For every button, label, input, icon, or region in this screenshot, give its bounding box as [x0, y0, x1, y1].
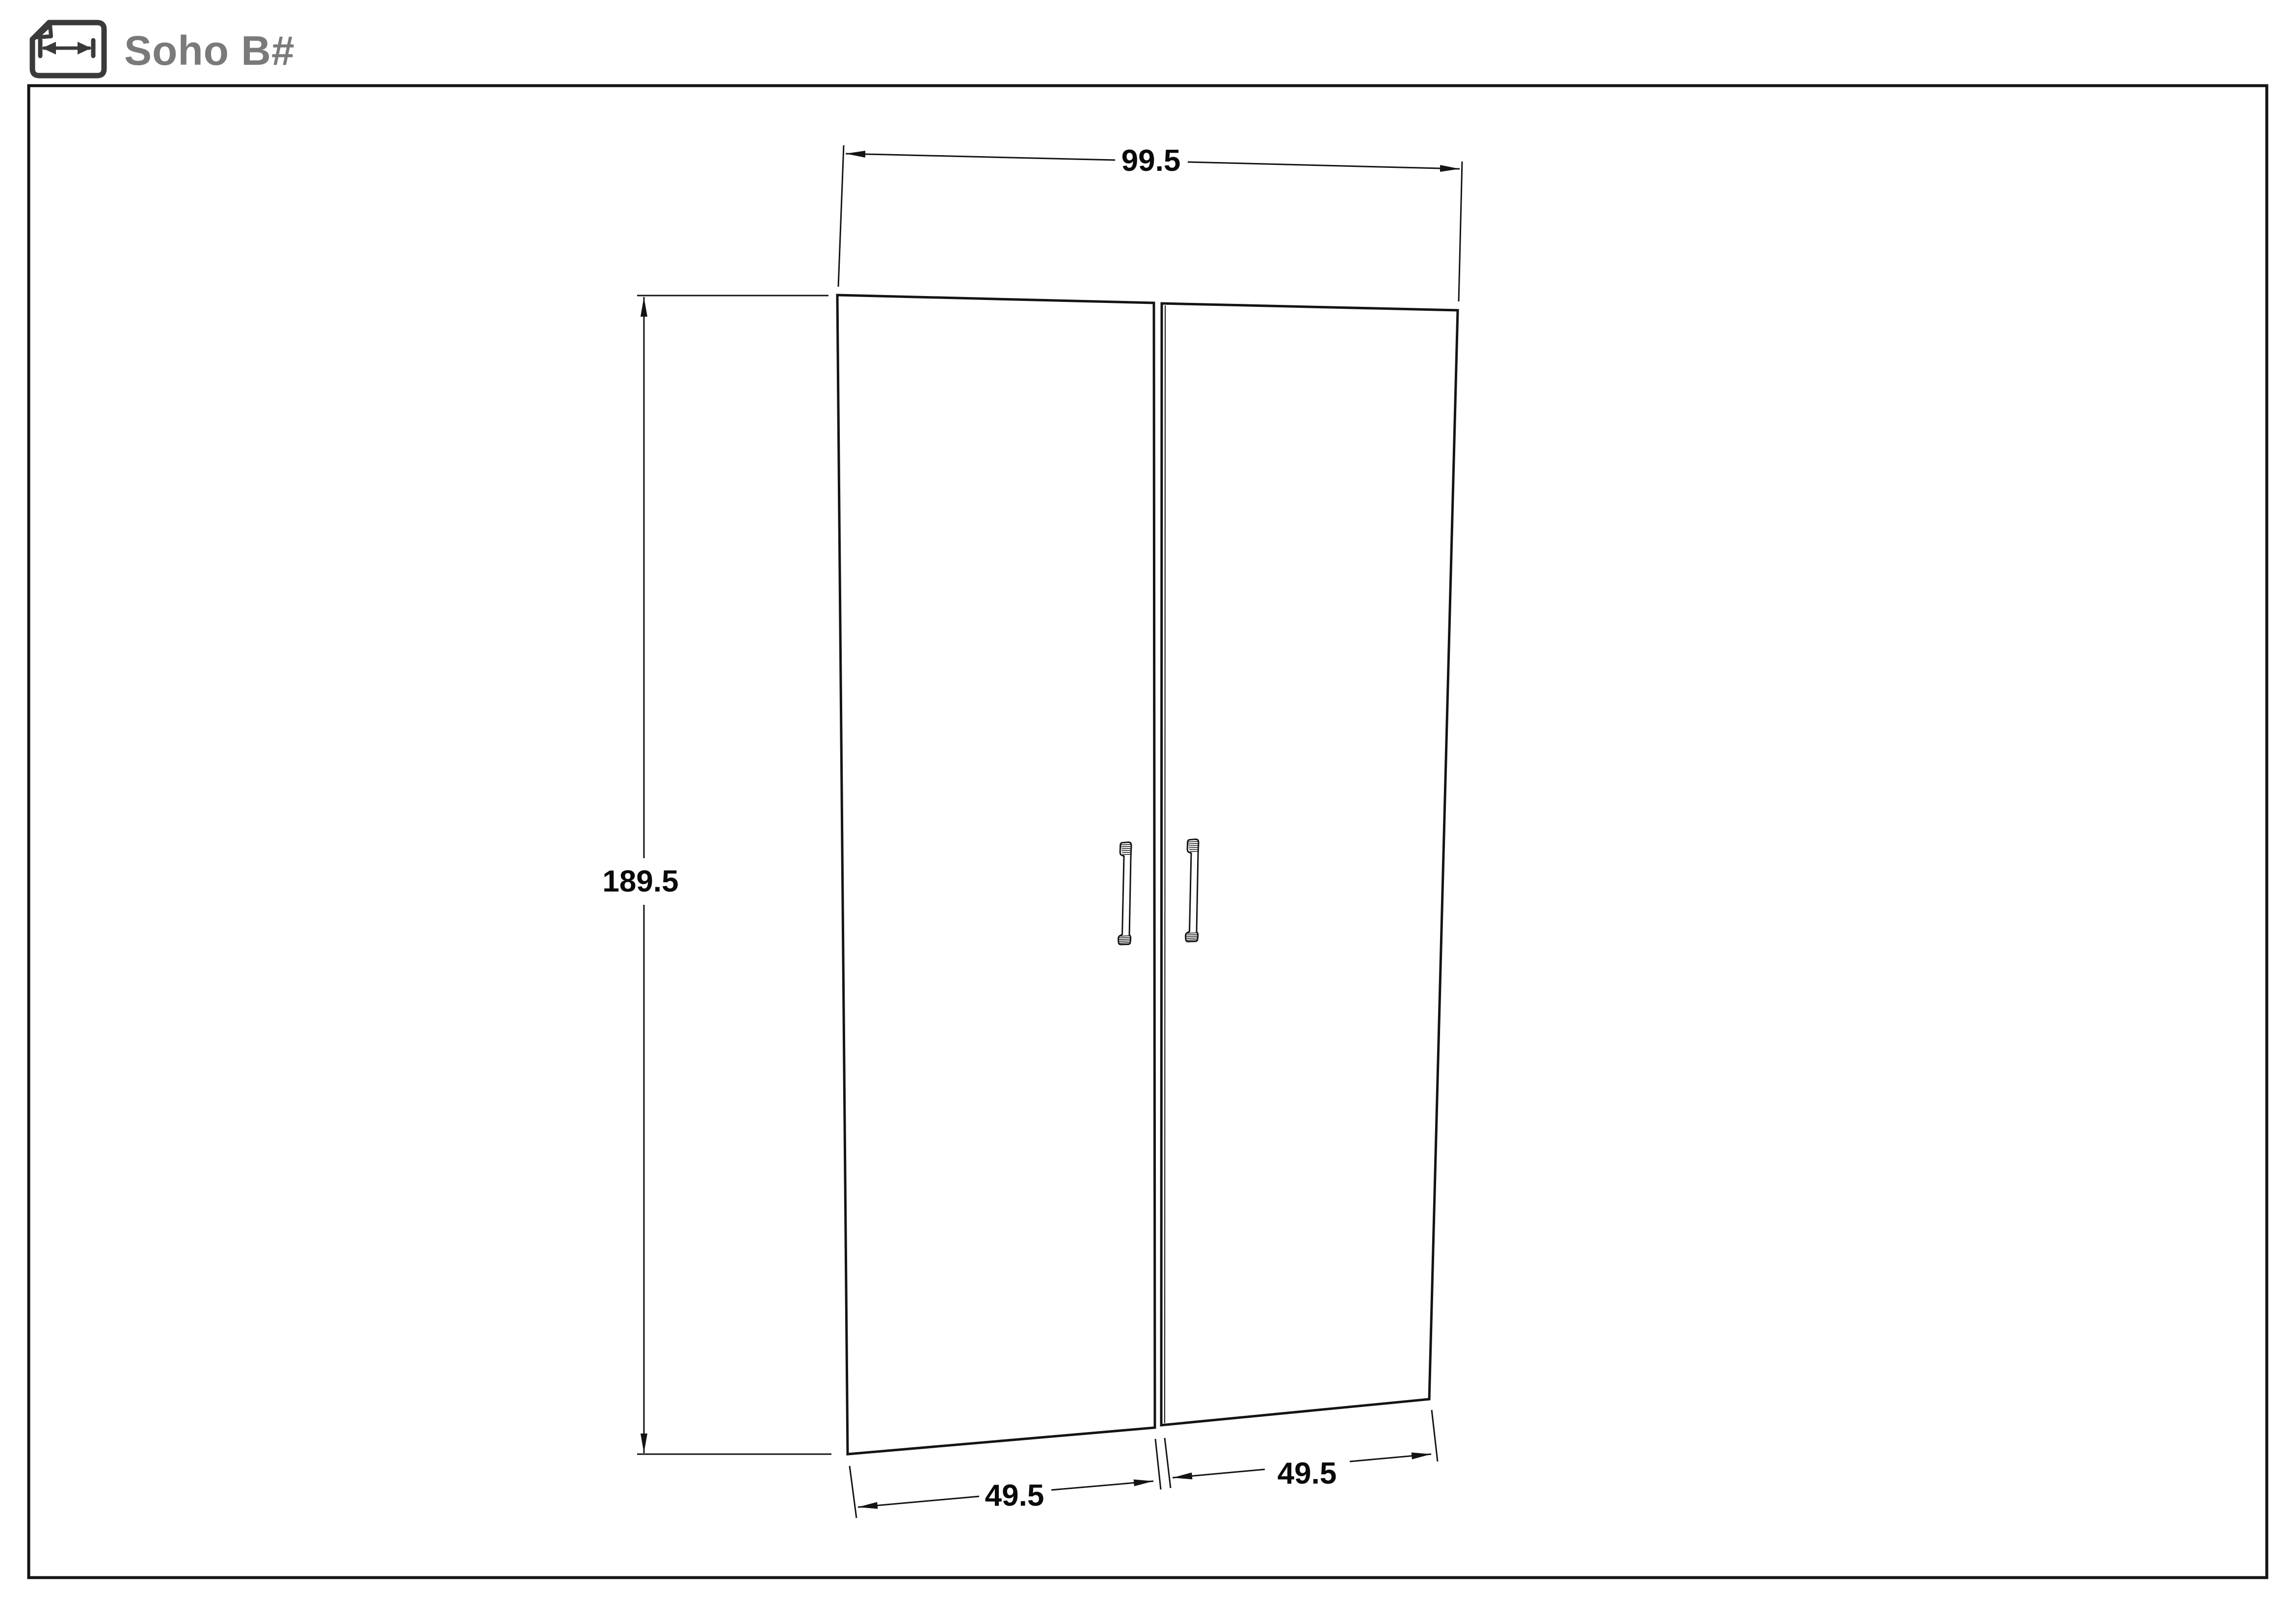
extension-line	[850, 1466, 856, 1518]
extension-line	[838, 145, 844, 287]
left-door-panel	[837, 295, 1155, 1454]
dimension-line	[1051, 1481, 1153, 1490]
dimension-label-height: 189.5	[602, 865, 678, 898]
door-gap-inner-edge	[1165, 305, 1165, 1423]
dimension-label-left-door-width: 49.5	[985, 1479, 1044, 1513]
dimension-line	[858, 1496, 979, 1507]
dimension-line	[1350, 1454, 1431, 1462]
dimension-line	[846, 154, 1115, 160]
extension-line	[1459, 162, 1462, 301]
dimension-label-total-width: 99.5	[1121, 144, 1181, 178]
extension-line	[1155, 1439, 1161, 1489]
door-panels	[837, 295, 1458, 1454]
dimension-height: 189.5	[602, 296, 831, 1454]
extension-line	[1432, 1410, 1438, 1462]
page: Soho B#	[0, 0, 2296, 1624]
dimension-line	[1173, 1469, 1265, 1478]
extension-line	[1165, 1438, 1171, 1488]
dimension-total-width: 99.5	[838, 144, 1462, 301]
dimension-line	[1188, 162, 1460, 169]
right-door-panel	[1161, 303, 1458, 1425]
dimension-label-right-door-width: 49.5	[1278, 1457, 1337, 1490]
technical-drawing: 99.5 189.5 49.5 49.5	[0, 0, 2296, 1624]
